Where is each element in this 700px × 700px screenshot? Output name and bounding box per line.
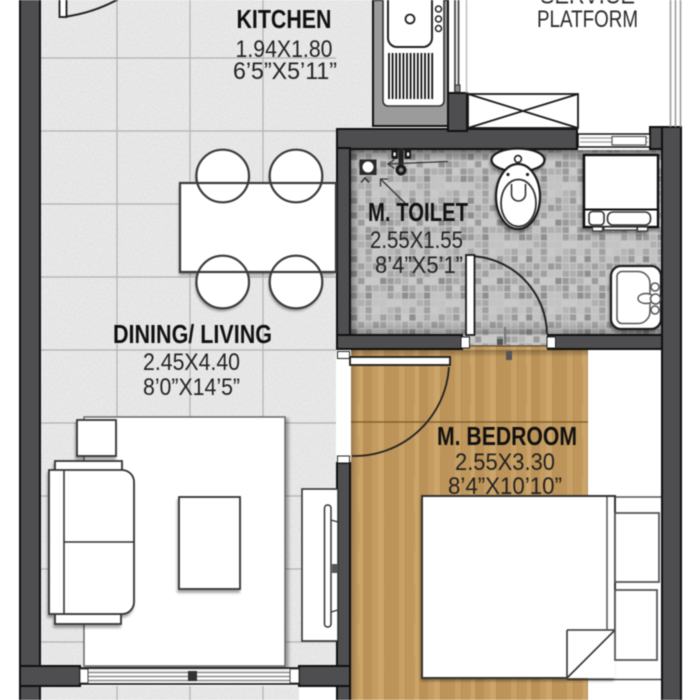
svg-text:8’0”X14’5”: 8’0”X14’5”	[143, 374, 240, 401]
svg-text:8’4”X10’10”: 8’4”X10’10”	[448, 473, 562, 500]
svg-text:SERVICE: SERVICE	[540, 0, 635, 10]
svg-text:8’4”X5’1”: 8’4”X5’1”	[375, 252, 463, 279]
svg-text:2.55X3.30: 2.55X3.30	[455, 449, 555, 476]
svg-text:2.55X1.55: 2.55X1.55	[370, 227, 463, 254]
svg-text:KITCHEN: KITCHEN	[237, 4, 332, 34]
svg-text:PLATFORM: PLATFORM	[537, 6, 638, 33]
svg-text:2.45X4.40: 2.45X4.40	[143, 349, 240, 376]
svg-text:M. BEDROOM: M. BEDROOM	[437, 421, 577, 451]
svg-text:DINING/ LIVING: DINING/ LIVING	[113, 319, 272, 349]
svg-text:M. TOILET: M. TOILET	[368, 197, 468, 227]
svg-text:6’5”X5’11”: 6’5”X5’11”	[233, 58, 337, 85]
